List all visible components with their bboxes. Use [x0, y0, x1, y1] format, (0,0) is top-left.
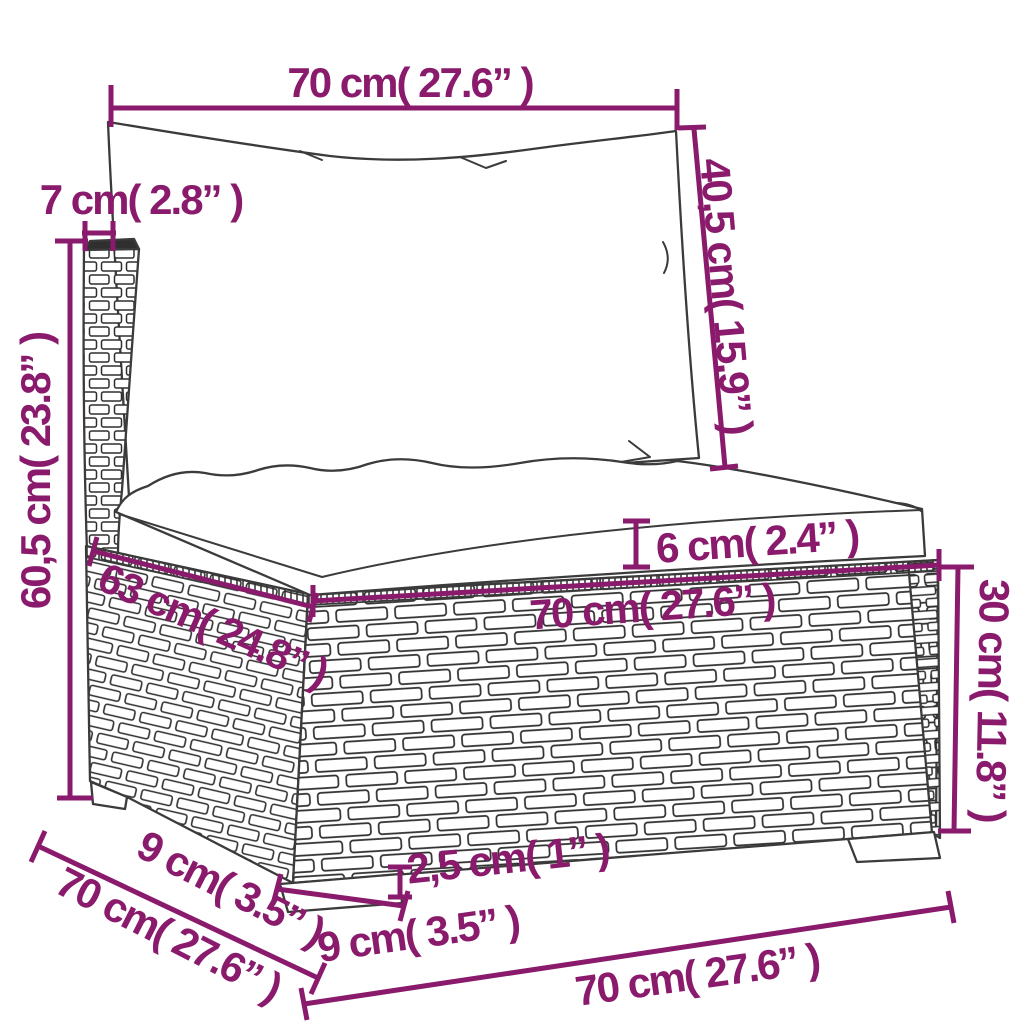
dim-label-back-post-width: 7 cm( 2.8” ): [40, 176, 242, 223]
dim-label-back-cushion-width: 70 cm( 27.6” ): [287, 59, 532, 106]
dim-label-base-height: 30 cm( 11.8” ): [967, 578, 1018, 822]
dim-label-back-cushion-height: 40,5 cm( 15.9” ): [691, 156, 762, 435]
dimension-diagram-page: 70 cm( 27.6” ) 40,5 cm( 15.9” ) 7 cm( 2.…: [0, 0, 1024, 1024]
dim-label-total-height: 60,5 cm( 23.8” ): [12, 333, 59, 609]
dimension-diagram-svg: 70 cm( 27.6” ) 40,5 cm( 15.9” ) 7 cm( 2.…: [0, 0, 1024, 1024]
